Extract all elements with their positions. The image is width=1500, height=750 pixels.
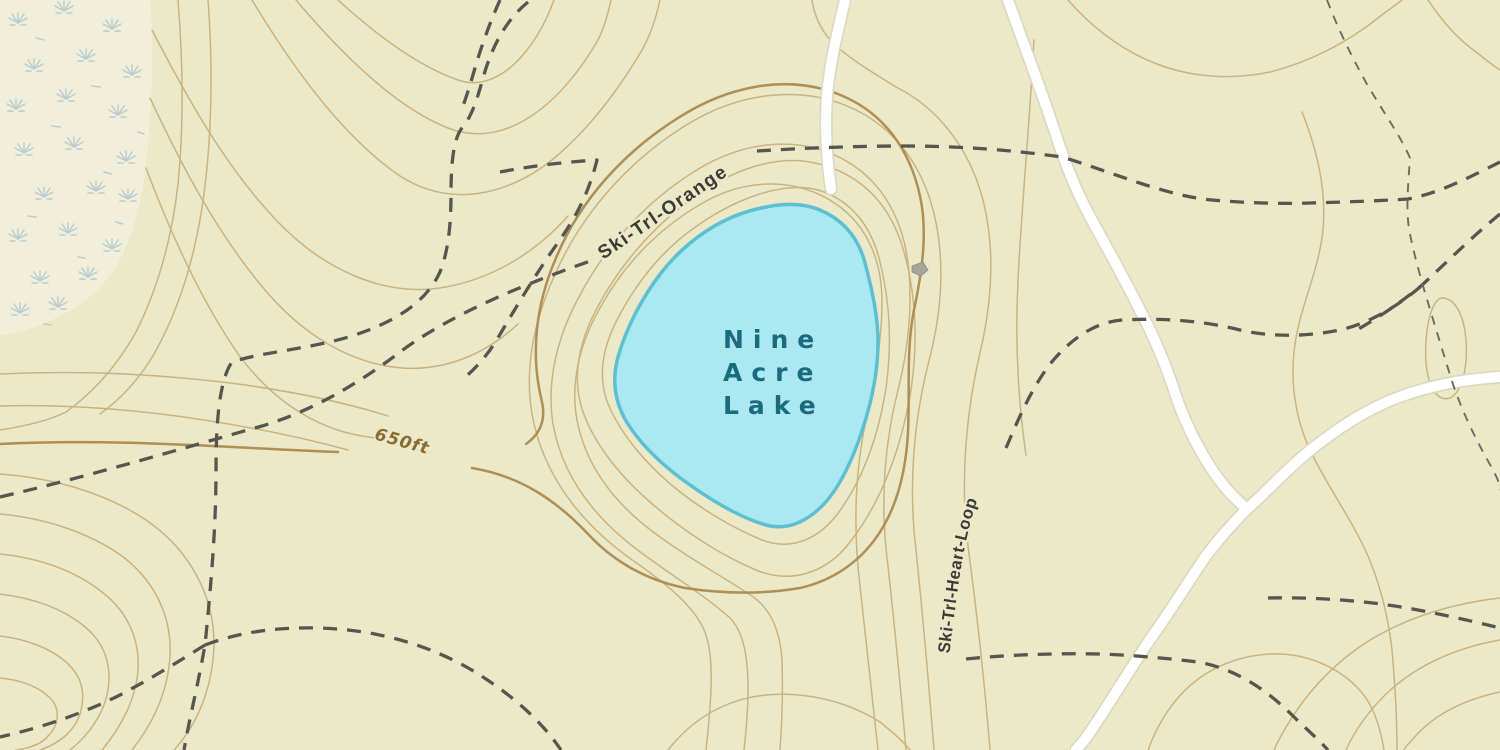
map-canvas[interactable]: Ski-Trl-Orange Ski-Trl-Heart-Loop 650ft …: [0, 0, 1500, 750]
lake-name-label: Nine Acre Lake: [723, 325, 825, 420]
lake-name-line-2: Acre: [723, 358, 822, 387]
topo-map-screenshot: Ski-Trl-Orange Ski-Trl-Heart-Loop 650ft …: [0, 0, 1500, 750]
lake-name-line-1: Nine: [723, 325, 823, 354]
lake-name-line-3: Lake: [723, 391, 825, 420]
